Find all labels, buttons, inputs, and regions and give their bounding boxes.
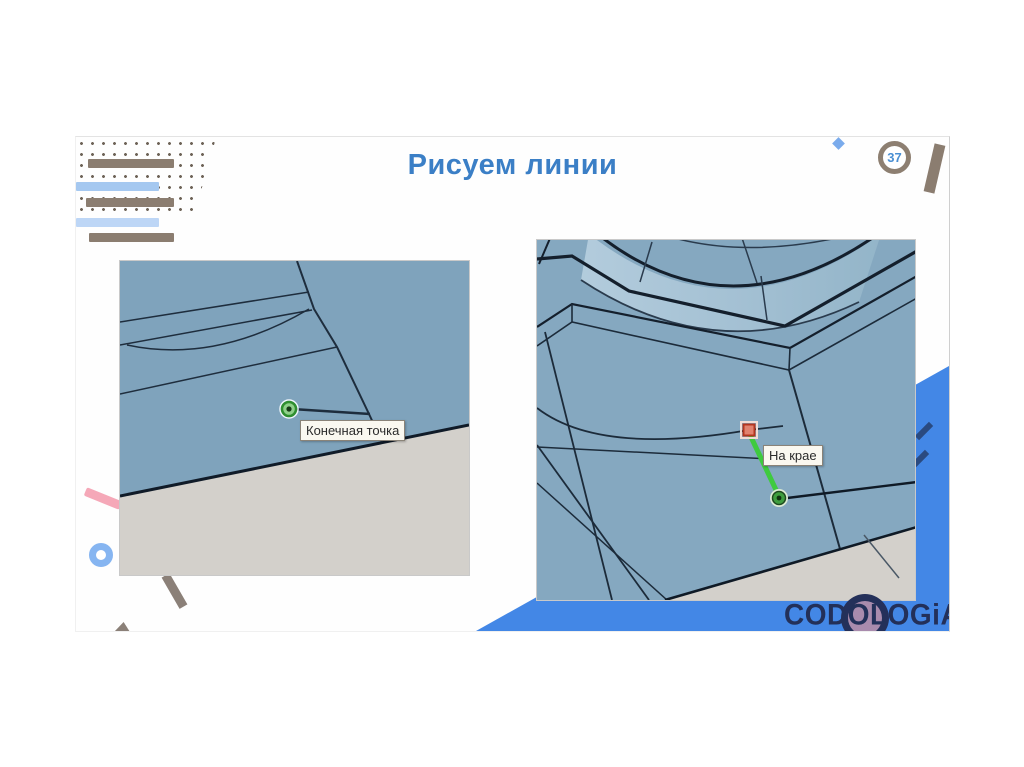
logo-text: CODOLOGiA — [784, 598, 950, 632]
decor-bar-taupe-3 — [89, 233, 174, 242]
endpoint-marker-icon — [770, 489, 788, 507]
slide-number: 37 — [887, 150, 901, 165]
decor-pink-bar — [84, 487, 123, 510]
slide: Рисуем линии 37 — [75, 136, 950, 632]
slide-title: Рисуем линии — [76, 149, 949, 182]
tooltip-on-edge: На крае — [763, 445, 823, 466]
sketchup-scene-left — [120, 261, 469, 575]
decor-bar-taupe-2 — [86, 198, 174, 207]
decor-blue-donut — [89, 543, 113, 567]
logo: CODOLOGiA — [776, 597, 950, 631]
decor-diamond-blue — [832, 137, 845, 150]
sketchup-screenshot-left: Конечная точка — [119, 260, 470, 576]
presentation-canvas: Рисуем линии 37 — [0, 0, 1024, 767]
decor-taupe-slash — [162, 573, 188, 609]
sketchup-scene-right — [537, 240, 915, 600]
tooltip-endpoint: Конечная точка — [300, 420, 405, 441]
slide-number-badge: 37 — [878, 141, 911, 174]
decor-bar-blue-1 — [76, 182, 159, 191]
endpoint-marker-icon — [280, 400, 298, 418]
decor-taupe-triangle — [114, 622, 130, 632]
on-edge-marker-icon — [741, 422, 757, 438]
sketchup-screenshot-right: На крае — [536, 239, 916, 601]
decor-bar-blue-2 — [76, 218, 159, 227]
